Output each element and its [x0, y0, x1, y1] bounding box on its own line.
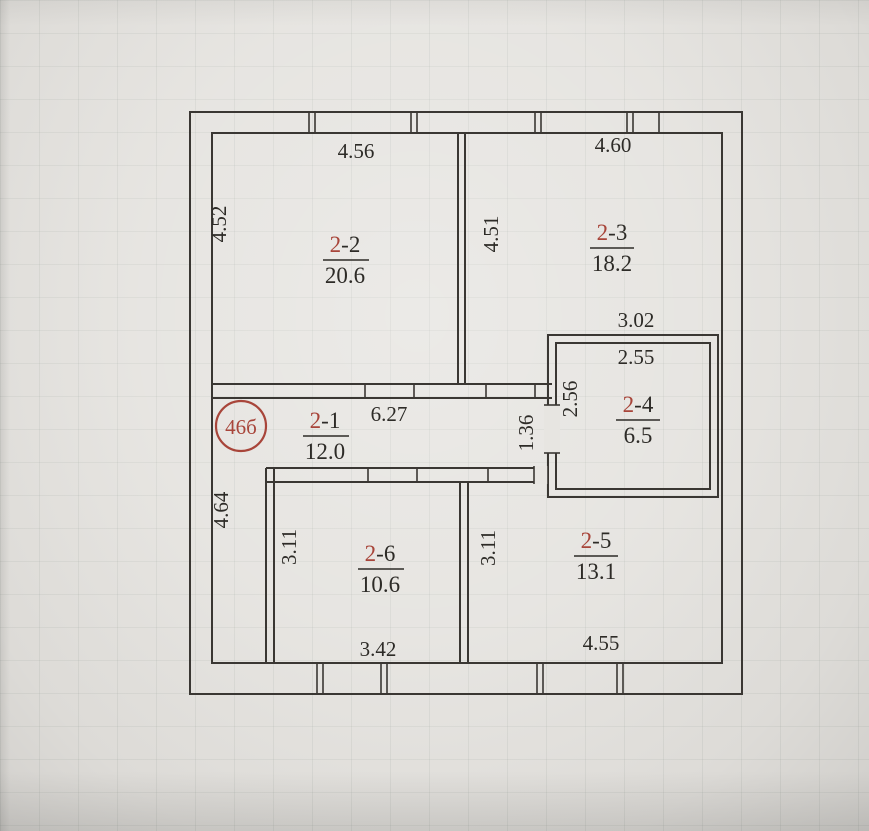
- dim-room24-inner-height: 2.56: [558, 381, 582, 418]
- dim-left-lower-height: 4.64: [209, 491, 233, 528]
- room-2-4-area: 6.5: [624, 423, 653, 448]
- room-2-2-number-prefix: 2: [330, 232, 342, 257]
- svg-text:2-2: 2-2: [330, 232, 361, 257]
- room-2-1-number-suffix: -1: [321, 408, 340, 433]
- room-2-5-label: 2-5 13.1: [574, 528, 618, 584]
- room-2-4-label: 2-4 6.5: [616, 392, 660, 448]
- room-2-3-label: 2-3 18.2: [590, 220, 634, 276]
- room-2-6-number-suffix: -6: [376, 541, 395, 566]
- room-2-5-number-prefix: 2: [581, 528, 593, 553]
- room-2-2-label: 2-2 20.6: [323, 232, 369, 288]
- dim-room23-width: 4.60: [595, 133, 632, 157]
- room-2-2-area: 20.6: [325, 263, 365, 288]
- dim-room22-height: 4.52: [207, 206, 231, 243]
- room-2-6-number-prefix: 2: [365, 541, 377, 566]
- room-2-6-label: 2-6 10.6: [358, 541, 404, 597]
- dim-room24-outer-width: 3.02: [618, 308, 655, 332]
- room-2-3-number-prefix: 2: [597, 220, 609, 245]
- room-2-6-area: 10.6: [360, 572, 400, 597]
- svg-text:2-1: 2-1: [310, 408, 341, 433]
- svg-text:2-6: 2-6: [365, 541, 396, 566]
- top-wall-window-ticks: [309, 112, 659, 133]
- room-2-1-number-prefix: 2: [310, 408, 322, 433]
- room-2-3-number-suffix: -3: [608, 220, 627, 245]
- stamp-46b: 46б: [216, 401, 266, 451]
- svg-text:2-4: 2-4: [623, 392, 654, 417]
- bottom-wall-window-ticks: [317, 663, 623, 694]
- room-2-4-number-prefix: 2: [623, 392, 635, 417]
- dim-room26-width: 3.42: [360, 637, 397, 661]
- dim-room24-inner-width: 2.55: [618, 345, 655, 369]
- door-opening-hall: [534, 466, 548, 484]
- svg-text:2-3: 2-3: [597, 220, 628, 245]
- dim-room22-width: 4.56: [338, 139, 375, 163]
- svg-text:2-5: 2-5: [581, 528, 612, 553]
- room-2-3-area: 18.2: [592, 251, 632, 276]
- room-2-5-area: 13.1: [576, 559, 616, 584]
- room-2-2-number-suffix: -2: [341, 232, 360, 257]
- room-2-1-area: 12.0: [305, 439, 345, 464]
- stamp-text: 46б: [225, 415, 257, 439]
- dim-room26-height: 3.11: [277, 529, 301, 565]
- room-2-5-number-suffix: -5: [592, 528, 611, 553]
- room-2-4-number-suffix: -4: [634, 392, 654, 417]
- dim-room25-height: 3.11: [476, 530, 500, 566]
- dim-hall-opening: 1.36: [514, 415, 538, 452]
- room-2-1-label: 2-1 12.0: [303, 408, 349, 464]
- dim-room23-height: 4.51: [479, 216, 503, 253]
- dim-room25-width: 4.55: [583, 631, 620, 655]
- dim-hall-length: 6.27: [371, 402, 408, 426]
- floor-plan-drawing: 4.56 4.60 4.52 4.51 3.02 2.55 2.56 6.27 …: [0, 0, 869, 831]
